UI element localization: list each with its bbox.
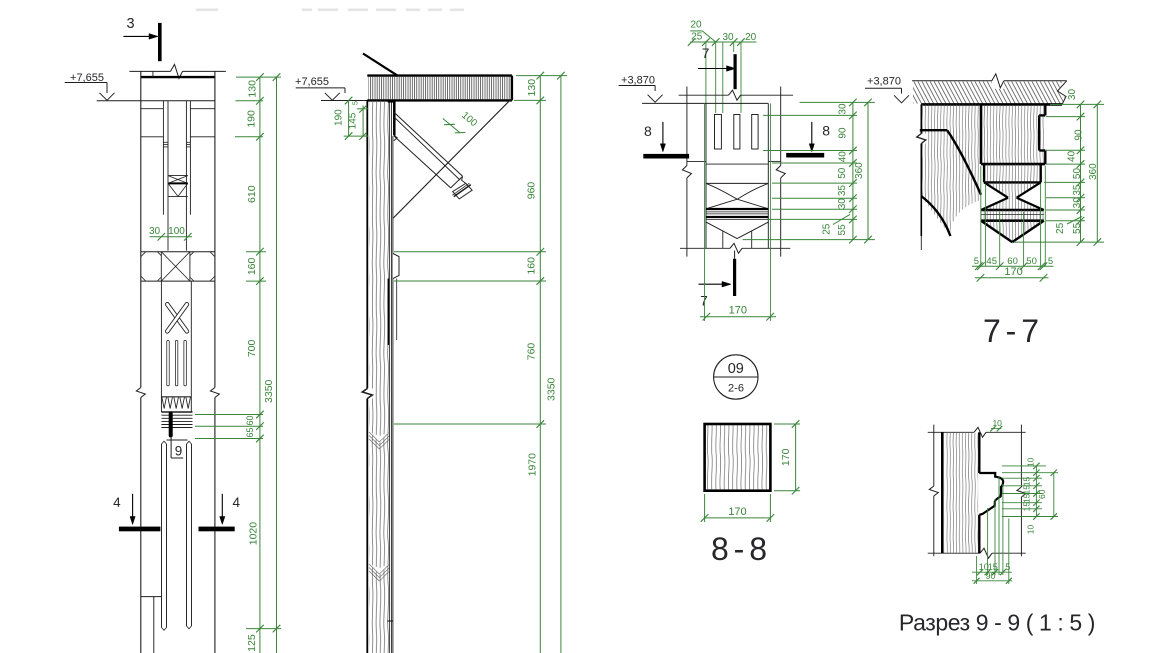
svg-text:7: 7 [702, 46, 710, 61]
svg-text:35: 35 [1072, 184, 1083, 196]
svg-text:8: 8 [644, 123, 652, 139]
svg-text:100: 100 [168, 226, 185, 237]
svg-text:30: 30 [838, 103, 849, 115]
svg-text:190: 190 [334, 109, 345, 126]
svg-text:4: 4 [113, 495, 121, 510]
svg-text:Разрез 9 - 9 ( 1 : 5 ): Разрез 9 - 9 ( 1 : 5 ) [899, 610, 1095, 636]
svg-text:55: 55 [837, 224, 848, 236]
svg-text:5: 5 [351, 101, 360, 105]
svg-text:1970: 1970 [527, 453, 539, 477]
svg-text:4: 4 [233, 495, 241, 510]
svg-text:+3,870: +3,870 [621, 75, 655, 87]
svg-text:09: 09 [728, 361, 744, 377]
svg-text:45: 45 [986, 256, 997, 267]
svg-text:8: 8 [822, 122, 830, 138]
svg-text:40: 40 [1066, 150, 1077, 162]
svg-text:170: 170 [729, 305, 747, 317]
svg-text:25: 25 [1055, 222, 1066, 234]
svg-text:160: 160 [246, 257, 258, 275]
svg-text:3350: 3350 [263, 379, 275, 403]
svg-text:170: 170 [1004, 266, 1022, 278]
svg-text:130: 130 [526, 79, 538, 97]
svg-text:170: 170 [780, 448, 792, 466]
svg-text:15: 15 [1022, 502, 1032, 512]
svg-text:610: 610 [246, 185, 258, 203]
svg-text:7: 7 [700, 294, 708, 309]
svg-text:60: 60 [245, 415, 255, 425]
svg-text:160: 160 [526, 257, 538, 275]
svg-text:30: 30 [149, 226, 161, 237]
svg-text:15: 15 [1022, 485, 1032, 495]
svg-text:700: 700 [246, 339, 258, 357]
svg-text:20: 20 [690, 20, 702, 31]
svg-text:65: 65 [245, 427, 255, 437]
svg-text:145: 145 [348, 112, 359, 129]
svg-text:130: 130 [247, 80, 259, 98]
svg-text:25: 25 [821, 223, 832, 235]
svg-text:960: 960 [526, 182, 538, 200]
svg-text:360: 360 [854, 162, 865, 179]
svg-text:5: 5 [1048, 256, 1053, 267]
svg-text:15: 15 [1022, 493, 1032, 503]
svg-text:190: 190 [246, 110, 258, 128]
svg-text:3350: 3350 [545, 377, 557, 401]
svg-text:90: 90 [1074, 129, 1085, 141]
svg-text:30: 30 [1072, 197, 1083, 209]
svg-text:+7,655: +7,655 [295, 76, 329, 88]
svg-text:5: 5 [974, 256, 979, 267]
svg-text:30: 30 [722, 32, 734, 43]
svg-text:30: 30 [837, 198, 848, 210]
svg-text:+3,870: +3,870 [867, 76, 901, 88]
svg-text:760: 760 [526, 343, 538, 361]
svg-text:10: 10 [1025, 457, 1035, 467]
svg-text:60: 60 [1037, 489, 1047, 499]
svg-text:90: 90 [985, 571, 995, 581]
svg-text:35: 35 [837, 185, 848, 197]
svg-text:1020: 1020 [248, 522, 260, 546]
svg-text:50: 50 [1072, 168, 1083, 180]
svg-text:2-6: 2-6 [728, 383, 744, 395]
svg-text:360: 360 [1088, 163, 1099, 180]
svg-text:15: 15 [1022, 477, 1032, 487]
svg-text:55: 55 [1072, 222, 1083, 234]
svg-text:5: 5 [1005, 562, 1010, 572]
svg-text:20: 20 [745, 32, 757, 43]
svg-text:90: 90 [838, 127, 849, 139]
svg-text:3: 3 [126, 16, 134, 32]
svg-text:50: 50 [837, 167, 848, 179]
svg-text:10: 10 [992, 418, 1002, 428]
svg-text:9: 9 [175, 444, 183, 459]
svg-text:30: 30 [1067, 89, 1078, 101]
svg-text:10: 10 [1025, 525, 1035, 535]
svg-text:40: 40 [838, 151, 849, 163]
svg-text:50: 50 [1026, 256, 1037, 267]
svg-text:8 - 8: 8 - 8 [711, 531, 766, 567]
svg-text:125: 125 [246, 634, 258, 652]
svg-text:7 - 7: 7 - 7 [983, 313, 1038, 349]
svg-text:100: 100 [459, 110, 479, 129]
svg-text:170: 170 [728, 506, 746, 518]
